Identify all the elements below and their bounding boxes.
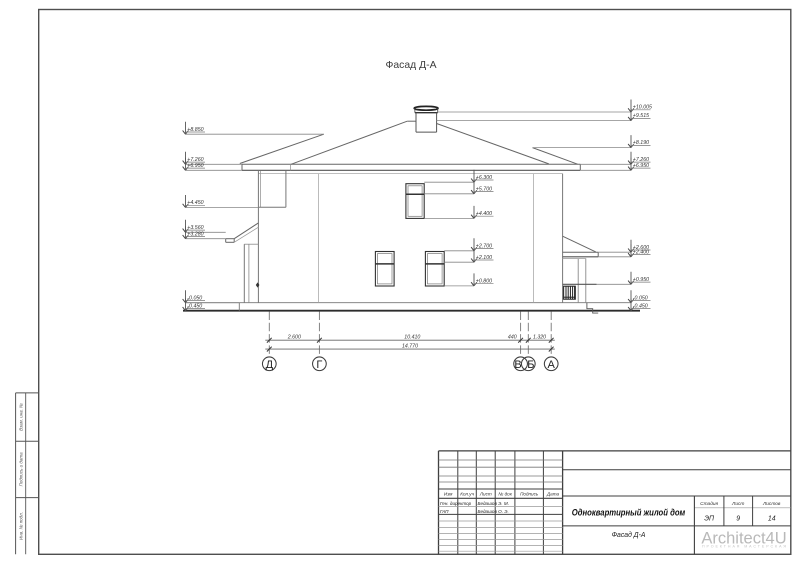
svg-text:Бедашов Э. М.: Бедашов Э. М. bbox=[478, 501, 509, 506]
svg-text:+2.400: +2.400 bbox=[633, 249, 649, 255]
svg-text:+4.450: +4.450 bbox=[187, 200, 203, 206]
svg-text:440: 440 bbox=[508, 335, 517, 341]
svg-text:Листов: Листов bbox=[762, 501, 781, 507]
svg-text:14: 14 bbox=[768, 516, 776, 523]
svg-text:№ док: № док bbox=[498, 492, 512, 497]
svg-text:Лист: Лист bbox=[731, 501, 744, 507]
svg-text:+2.700: +2.700 bbox=[476, 243, 492, 249]
svg-text:Одноквартирный жилой дом: Одноквартирный жилой дом bbox=[572, 507, 686, 517]
svg-text:-0.450: -0.450 bbox=[187, 303, 202, 309]
svg-text:Г: Г bbox=[316, 359, 322, 371]
svg-text:Стадия: Стадия bbox=[700, 501, 718, 507]
svg-text:Взам. инв. №: Взам. инв. № bbox=[19, 403, 24, 431]
svg-text:Лист: Лист bbox=[479, 492, 492, 497]
svg-text:Фасад Д-А: Фасад Д-А bbox=[612, 530, 646, 539]
svg-text:Б: Б bbox=[527, 359, 534, 371]
svg-text:1.320: 1.320 bbox=[533, 335, 546, 341]
svg-text:+6.300: +6.300 bbox=[476, 175, 492, 181]
svg-text:Подпись и дата: Подпись и дата bbox=[19, 452, 24, 487]
svg-text:+3.560: +3.560 bbox=[187, 225, 203, 231]
svg-text:+8.190: +8.190 bbox=[633, 140, 649, 146]
svg-text:Фасад Д-А: Фасад Д-А bbox=[386, 59, 437, 71]
svg-text:-0.050: -0.050 bbox=[187, 295, 202, 301]
svg-text:ГАП: ГАП bbox=[440, 509, 449, 514]
svg-text:+8.850: +8.850 bbox=[187, 127, 203, 133]
svg-text:Подпись: Подпись bbox=[520, 492, 539, 497]
svg-text:+7.260: +7.260 bbox=[187, 157, 203, 163]
svg-text:-0.050: -0.050 bbox=[633, 295, 648, 301]
svg-text:ЭП: ЭП bbox=[704, 516, 715, 523]
svg-text:+6.950: +6.950 bbox=[187, 163, 203, 169]
svg-text:-0.450: -0.450 bbox=[633, 303, 648, 309]
svg-text:+0.800: +0.800 bbox=[476, 279, 492, 285]
svg-text:Изм: Изм bbox=[444, 492, 453, 497]
svg-text:Кол.уч: Кол.уч bbox=[460, 492, 474, 497]
svg-text:2.600: 2.600 bbox=[287, 335, 301, 341]
svg-text:+6.950: +6.950 bbox=[633, 163, 649, 169]
svg-text:+5.700: +5.700 bbox=[476, 186, 492, 192]
svg-text:+7.260: +7.260 bbox=[633, 157, 649, 163]
svg-text:В: В bbox=[514, 359, 521, 371]
svg-text:Дата: Дата bbox=[546, 492, 560, 497]
svg-text:Бедашов О. Э.: Бедашов О. Э. bbox=[478, 509, 509, 514]
svg-text:+4.400: +4.400 bbox=[476, 211, 492, 217]
svg-text:9: 9 bbox=[736, 516, 740, 523]
svg-text:10.410: 10.410 bbox=[404, 335, 420, 341]
svg-text:14.770: 14.770 bbox=[402, 344, 418, 350]
svg-text:+9.515: +9.515 bbox=[633, 113, 649, 119]
svg-text:+10.005: +10.005 bbox=[633, 105, 652, 111]
svg-text:Д: Д bbox=[266, 359, 274, 371]
svg-text:+2.100: +2.100 bbox=[476, 255, 492, 261]
svg-text:Ген. директор: Ген. директор bbox=[440, 501, 472, 506]
svg-text:А: А bbox=[548, 359, 556, 371]
svg-text:+3.280: +3.280 bbox=[187, 231, 203, 237]
svg-text:Инв. № подл.: Инв. № подл. bbox=[19, 512, 24, 540]
svg-text:+0.950: +0.950 bbox=[633, 277, 649, 283]
